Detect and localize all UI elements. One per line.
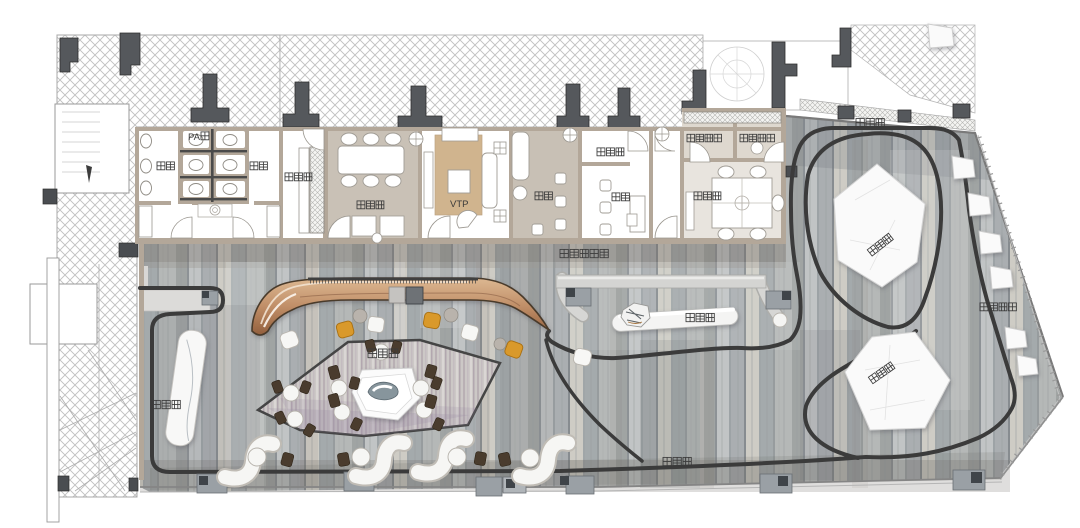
svg-text:VTP: VTP bbox=[450, 199, 468, 210]
svg-text:PA: PA bbox=[188, 132, 201, 143]
